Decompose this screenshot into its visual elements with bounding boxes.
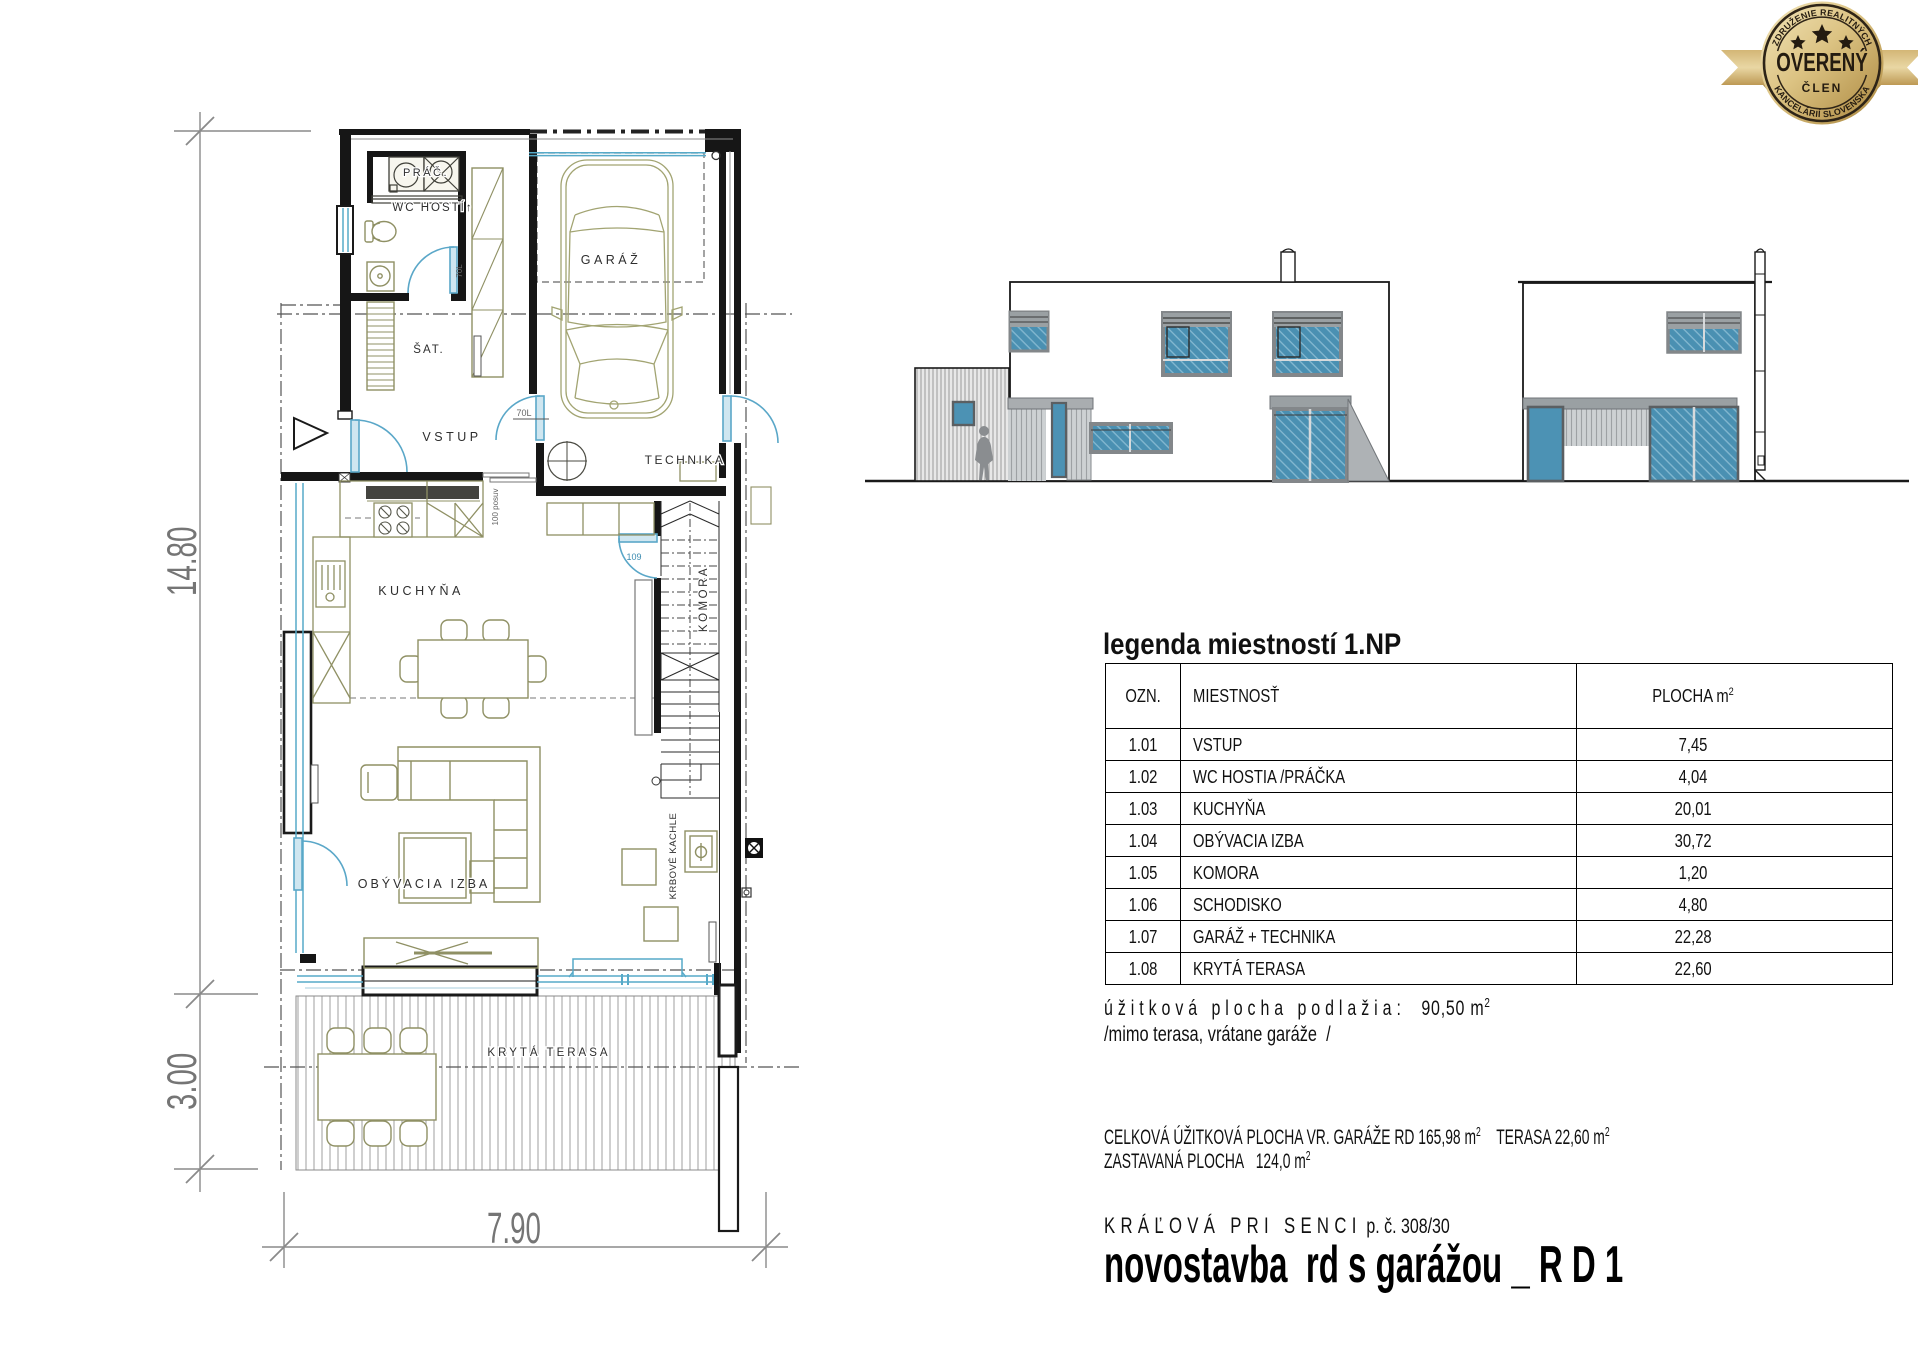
svg-text:14.80: 14.80: [158, 527, 205, 596]
svg-text:109: 109: [626, 552, 641, 562]
svg-text:PRÁČ.: PRÁČ.: [403, 166, 449, 179]
svg-text:KUCHYŇA: KUCHYŇA: [378, 583, 464, 598]
svg-text:KOMORA: KOMORA: [698, 566, 710, 632]
svg-text:KRBOVÉ KACHLE: KRBOVÉ KACHLE: [668, 813, 679, 900]
svg-text:3.00: 3.00: [158, 1053, 206, 1110]
svg-text:70L: 70L: [516, 408, 531, 418]
svg-text:ŠAT.: ŠAT.: [413, 343, 444, 356]
svg-text:ČLEN: ČLEN: [1802, 80, 1843, 95]
svg-text:VSTUP: VSTUP: [422, 430, 481, 444]
svg-text:WC HOSTÍ↑: WC HOSTÍ↑: [392, 201, 473, 214]
svg-text:KRYTÁ TERASA: KRYTÁ TERASA: [487, 1046, 610, 1059]
svg-text:OVERENÝ: OVERENÝ: [1776, 47, 1867, 77]
svg-text:100 posuv: 100 posuv: [491, 489, 500, 526]
svg-text:70L: 70L: [455, 264, 464, 278]
svg-text:OBÝVACIA IZBA: OBÝVACIA IZBA: [358, 876, 491, 891]
svg-text:TECHNIKA: TECHNIKA: [645, 453, 726, 467]
svg-text:GARÁŽ: GARÁŽ: [581, 252, 642, 267]
svg-text:7.90: 7.90: [487, 1204, 541, 1253]
